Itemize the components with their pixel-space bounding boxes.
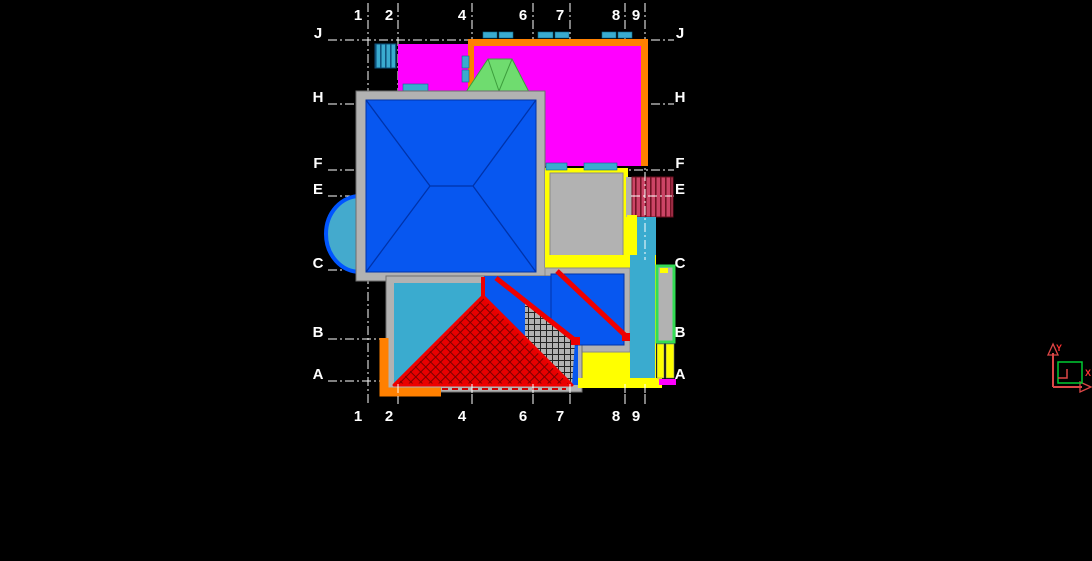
row-label: B xyxy=(675,324,686,341)
eave-window-strip[interactable] xyxy=(403,84,428,91)
yellow-pillar-strip[interactable] xyxy=(657,344,664,378)
ridge-window-strips[interactable] xyxy=(483,32,632,38)
row-label: H xyxy=(313,89,324,106)
col-label: 6 xyxy=(519,7,527,24)
col-label: 4 xyxy=(458,408,467,425)
pergola-gray-edge[interactable] xyxy=(626,177,632,217)
row-label: A xyxy=(675,366,686,383)
orange-frame-top-bar[interactable] xyxy=(468,39,648,46)
row-label: J xyxy=(314,25,322,42)
col-label: 6 xyxy=(519,408,527,425)
col-label: 9 xyxy=(632,408,640,425)
green-balcony-box[interactable] xyxy=(657,266,674,342)
row-label: E xyxy=(675,181,685,198)
row-label: J xyxy=(676,25,684,42)
vent-strip[interactable] xyxy=(462,56,469,68)
row-label: B xyxy=(313,324,324,341)
connector-yellow-strip[interactable] xyxy=(627,215,637,260)
eave-window-strip[interactable] xyxy=(546,163,567,170)
col-label: 9 xyxy=(632,7,640,24)
window-strip[interactable] xyxy=(483,32,497,38)
row-label: A xyxy=(313,366,324,383)
ucs-y-label: Y xyxy=(1056,343,1062,353)
row-label: C xyxy=(675,255,686,272)
row-label: C xyxy=(313,255,324,272)
window-strip[interactable] xyxy=(538,32,553,38)
main-hip-roof[interactable] xyxy=(356,91,545,281)
right-edge-elements[interactable] xyxy=(657,266,676,385)
col-label: 4 xyxy=(458,7,467,24)
col-label: 2 xyxy=(385,7,393,24)
orange-frame-right-bar[interactable] xyxy=(641,39,648,166)
bottom-yellow-band[interactable] xyxy=(578,378,662,388)
window-strip[interactable] xyxy=(618,32,632,38)
row-label: F xyxy=(313,155,322,172)
col-label: 8 xyxy=(612,7,620,24)
connector-cyan-strip[interactable] xyxy=(637,217,656,257)
row-label: E xyxy=(313,181,323,198)
balcony-yellow-notch[interactable] xyxy=(660,268,668,273)
col-label: 8 xyxy=(612,408,620,425)
magenta-marker-bar[interactable] xyxy=(659,379,676,385)
eave-window-strip[interactable] xyxy=(584,163,617,170)
row-label: H xyxy=(675,89,686,106)
col-label: 1 xyxy=(354,408,362,425)
col-label: 1 xyxy=(354,7,362,24)
ucs-x-label: X xyxy=(1085,368,1091,378)
ridge-end-block[interactable] xyxy=(571,337,580,345)
row-label: F xyxy=(675,155,684,172)
cad-application-window: 1 2 4 6 7 8 9 1 2 4 6 7 8 9 J H F E C B … xyxy=(0,0,1092,561)
crimson-pergola-hatch[interactable] xyxy=(632,177,673,217)
drawing-canvas[interactable]: 1 2 4 6 7 8 9 1 2 4 6 7 8 9 J H F E C B … xyxy=(0,0,1092,561)
col-label: 2 xyxy=(385,408,393,425)
window-strip[interactable] xyxy=(555,32,569,38)
col-label: 7 xyxy=(556,7,564,24)
side-cyan-strip[interactable] xyxy=(630,255,655,378)
terrace-gray-fill[interactable] xyxy=(550,173,623,262)
col-label: 7 xyxy=(556,408,564,425)
terrace-box[interactable] xyxy=(545,168,628,267)
window-strip[interactable] xyxy=(499,32,513,38)
window-strip[interactable] xyxy=(602,32,616,38)
vent-strip[interactable] xyxy=(462,70,469,82)
stair-hatch-block[interactable] xyxy=(375,44,396,68)
yellow-pillar-strip[interactable] xyxy=(666,344,674,378)
